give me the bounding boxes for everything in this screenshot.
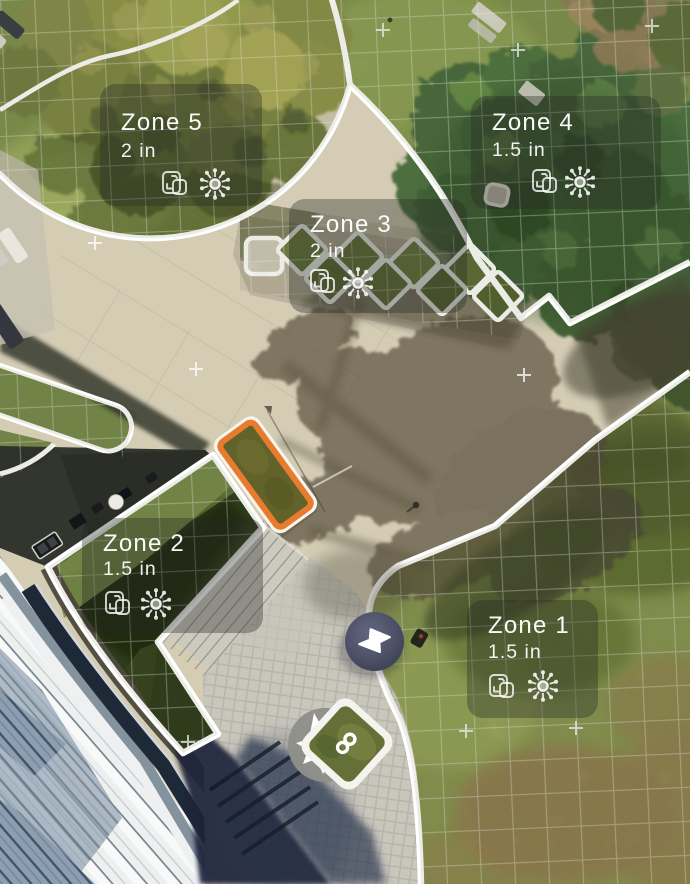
svg-text:Zone 5: Zone 5 — [121, 109, 203, 136]
svg-text:1.5 in: 1.5 in — [488, 641, 542, 663]
svg-text:2 in: 2 in — [310, 240, 345, 262]
svg-text:1.5 in: 1.5 in — [103, 558, 157, 580]
svg-text:Zone 4: Zone 4 — [492, 109, 574, 136]
svg-text:Zone 1: Zone 1 — [488, 612, 570, 639]
svg-text:Zone 2: Zone 2 — [103, 530, 185, 557]
svg-text:Zone 3: Zone 3 — [310, 211, 392, 238]
svg-text:2 in: 2 in — [121, 140, 156, 162]
svg-text:1.5 in: 1.5 in — [492, 139, 546, 161]
